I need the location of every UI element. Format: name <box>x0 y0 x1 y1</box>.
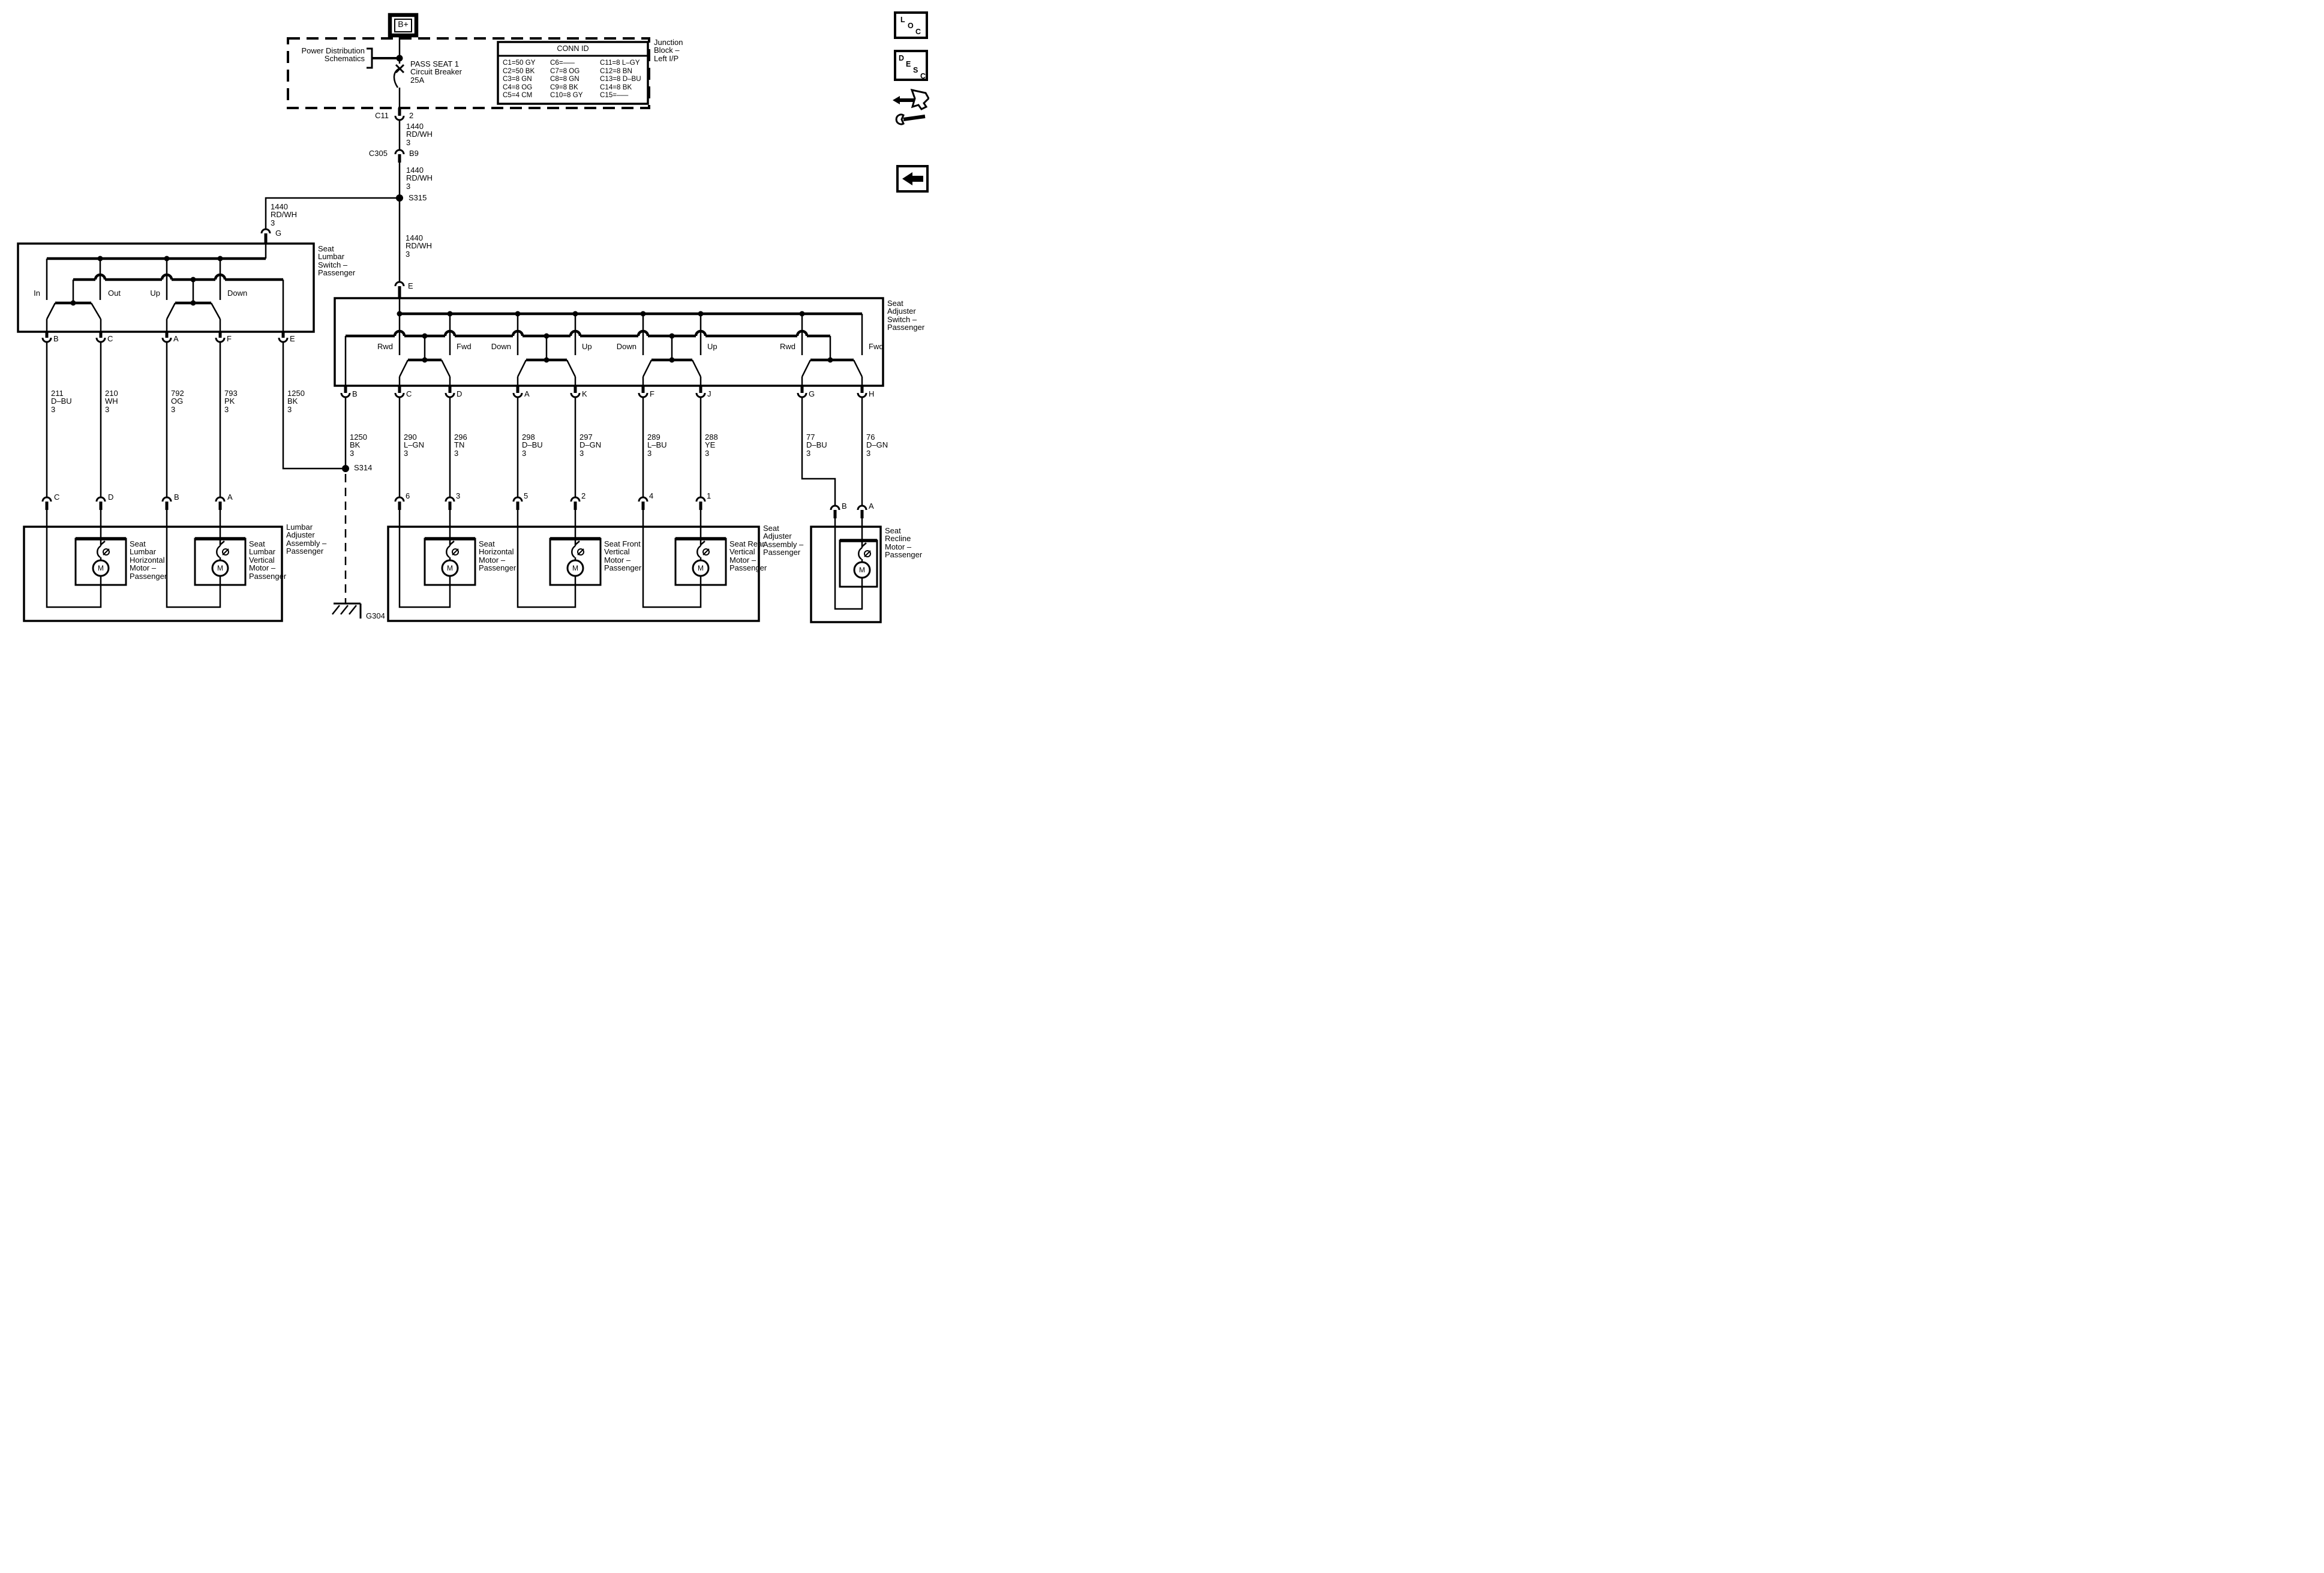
connector-e-icon <box>395 282 404 286</box>
connector-c11-icon <box>395 116 404 120</box>
battery-label: B+ <box>390 20 416 28</box>
power-distribution-label: Power Distribution Schematics <box>287 47 365 63</box>
lumbar-position-up: Up <box>136 289 160 297</box>
motor-m-4: M <box>569 565 581 572</box>
seat-horizontal-motor-label: Seat Horizontal Motor – Passenger <box>479 540 516 572</box>
circuit-breaker-label: PASS SEAT 1 Circuit Breaker 25A <box>410 60 462 84</box>
lumbar-vertical-motor-label: Seat Lumbar Vertical Motor – Passenger <box>249 540 286 580</box>
seat-recline-switch-contact[interactable] <box>802 358 862 386</box>
lumbar-bottom-pin-c: C <box>54 493 59 501</box>
seat-front-vertical-motor-icon <box>568 539 584 585</box>
adjuster-position-fwd-2: Fwd <box>869 343 884 350</box>
connector-c305-label: C305 <box>352 149 388 157</box>
splice-s314-label: S314 <box>354 464 372 472</box>
seat-adjuster-assembly-box <box>388 527 759 621</box>
lumbar-pin-e: E <box>290 335 295 343</box>
splice-s315-label: S315 <box>409 194 427 202</box>
lumbar-switch-pins <box>43 332 342 497</box>
adjuster-assembly-connectors <box>395 497 866 527</box>
wiring-diagram-page: B+ Power Distribution Schematics PASS SE… <box>0 0 929 629</box>
assembly-pin-4: 4 <box>649 492 653 500</box>
desc-letter-e: E <box>906 60 911 68</box>
motor-m-2: M <box>214 565 226 572</box>
adjuster-pin-g: G <box>809 390 815 398</box>
wire-1250-label-lumbar: 1250 BK 3 <box>287 389 305 413</box>
adjuster-pin-b: B <box>352 390 358 398</box>
loc-letter-c: C <box>915 28 921 36</box>
ground-g304-icon <box>332 604 361 619</box>
adjuster-pin-j: J <box>707 390 711 398</box>
wire-290-label: 290 L–GN 3 <box>404 433 424 457</box>
adjuster-position-rwd-2: Rwd <box>765 343 795 350</box>
seat-horizontal-motor-icon <box>442 539 458 585</box>
wire-210-label: 210 WH 3 <box>105 389 118 413</box>
conn-id-title: CONN ID <box>498 45 648 53</box>
wire-289-label: 289 L–BU 3 <box>647 433 667 457</box>
wire-77-label: 77 D–BU 3 <box>806 433 827 457</box>
adjuster-position-rwd-1: Rwd <box>363 343 393 350</box>
lumbar-pin-b: B <box>53 335 59 343</box>
adjuster-pin-f: F <box>650 390 654 398</box>
adjuster-pin-h: H <box>869 390 874 398</box>
seat-adjuster-switch-box <box>335 298 883 386</box>
wire-288-label: 288 YE 3 <box>705 433 718 457</box>
lumbar-vertical-switch-contact[interactable] <box>167 301 220 332</box>
adjuster-pin-a: A <box>524 390 530 398</box>
adjuster-position-down-1: Down <box>481 343 511 350</box>
lumbar-horizontal-switch-contact[interactable] <box>47 301 101 332</box>
adjuster-pin-k: K <box>582 390 587 398</box>
lumbar-pin-f: F <box>227 335 232 343</box>
recline-pin-a: A <box>869 502 874 510</box>
motor-m-3: M <box>444 565 456 572</box>
adjuster-pin-d: D <box>457 390 462 398</box>
circuit-breaker-symbol <box>394 65 404 88</box>
motor-m-5: M <box>695 565 707 572</box>
lumbar-pin-a: A <box>173 335 179 343</box>
loc-letter-o: O <box>908 22 914 30</box>
wire-1250-label-adjuster: 1250 BK 3 <box>350 433 367 457</box>
desc-letter-d: D <box>899 54 904 62</box>
wire-298-label: 298 D–BU 3 <box>522 433 543 457</box>
desc-letter-s: S <box>913 66 918 74</box>
adjuster-switch-title: Seat Adjuster Switch – Passenger <box>887 299 924 332</box>
lumbar-pin-c: C <box>107 335 113 343</box>
lumbar-switch-title: Seat Lumbar Switch – Passenger <box>318 245 355 277</box>
lumbar-position-out: Out <box>108 289 121 297</box>
seat-recline-motor-assembly-box <box>811 527 881 622</box>
adjuster-pin-c: C <box>406 390 412 398</box>
seat-rear-vertical-switch-contact[interactable] <box>643 358 701 386</box>
assembly-pin-6: 6 <box>406 492 410 500</box>
connector-c305-icon <box>395 150 404 154</box>
seat-rear-vertical-motor-icon <box>693 539 709 585</box>
adjuster-position-up-1: Up <box>582 343 592 350</box>
assembly-pin-3: 3 <box>456 492 460 500</box>
adjuster-position-fwd-1: Fwd <box>457 343 472 350</box>
assembly-pin-2: 2 <box>581 492 585 500</box>
adjuster-position-up-2: Up <box>707 343 717 350</box>
wire-1440-label-2: 1440 RD/WH 3 <box>406 166 433 190</box>
seat-lumbar-switch-box <box>18 244 314 332</box>
seat-rear-vertical-motor-label: Seat Rear Vertical Motor – Passenger <box>729 540 767 572</box>
sidebar-icons <box>893 13 929 191</box>
lumbar-bottom-pin-a: A <box>227 493 233 501</box>
power-distribution-bracket <box>367 49 372 68</box>
connector-g-icon <box>262 229 270 233</box>
wire-1440-label-1: 1440 RD/WH 3 <box>406 122 433 146</box>
loc-letter-l: L <box>900 16 905 24</box>
lumbar-bottom-pin-d: D <box>108 493 113 501</box>
motor-m-6: M <box>856 566 868 574</box>
connector-c11-label: C11 <box>355 112 389 119</box>
pin-e-label: E <box>408 282 413 290</box>
assembly-pin-5: 5 <box>524 492 528 500</box>
wire-1440-label-4: 1440 RD/WH 3 <box>406 234 432 258</box>
wire-793-label: 793 PK 3 <box>224 389 238 413</box>
lumbar-assembly-title: Lumbar Adjuster Assembly – Passenger <box>286 523 326 556</box>
seat-horizontal-switch-contact[interactable] <box>400 358 450 386</box>
junction-block-label: Junction Block – Left I/P <box>654 38 683 62</box>
adjuster-assembly-title: Seat Adjuster Assembly – Passenger <box>763 524 803 557</box>
adjuster-position-down-2: Down <box>606 343 636 350</box>
conn-id-col2: C6=––– C7=8 OG C8=8 GN C9=8 BK C10=8 GY <box>550 59 582 100</box>
lumbar-horizontal-motor-label: Seat Lumbar Horizontal Motor – Passenger <box>130 540 167 580</box>
lumbar-bottom-pin-b: B <box>174 493 179 501</box>
lumbar-horizontal-motor-icon <box>93 539 109 585</box>
seat-recline-motor-label: Seat Recline Motor – Passenger <box>885 527 922 559</box>
conn-id-col3: C11=8 L–GY C12=8 BN C13=8 D–BU C14=8 BK … <box>600 59 641 100</box>
wire-76-label: 76 D–GN 3 <box>866 433 888 457</box>
splice-s314-dot <box>343 466 349 472</box>
recline-pin-b: B <box>842 502 847 510</box>
wire-211-label: 211 D–BU 3 <box>51 389 72 413</box>
s314-ground-path <box>332 466 361 619</box>
seat-recline-motor-icon <box>854 541 870 587</box>
seat-front-vertical-motor-label: Seat Front Vertical Motor – Passenger <box>604 540 641 572</box>
ground-g304-label: G304 <box>366 612 385 620</box>
back-button[interactable] <box>897 166 927 191</box>
pin-g-label: G <box>275 229 281 237</box>
wire-792-label: 792 OG 3 <box>171 389 184 413</box>
lumbar-position-down: Down <box>227 289 247 297</box>
wire-1440-label-3: 1440 RD/WH 3 <box>271 203 297 227</box>
connector-c11-pin: 2 <box>409 112 413 119</box>
desc-letter-c: C <box>920 72 926 80</box>
lumbar-assembly-connectors <box>43 497 224 527</box>
wire-297-label: 297 D–GN 3 <box>580 433 601 457</box>
conn-id-col1: C1=50 GY C2=50 BK C3=8 GN C4=8 OG C5=4 C… <box>503 59 535 100</box>
lumbar-position-in: In <box>16 289 40 297</box>
lumbar-vertical-motor-icon <box>212 539 229 585</box>
back-arrow-icon <box>902 172 923 185</box>
schematic-navigation-icon[interactable] <box>893 90 929 124</box>
wrench-icon <box>896 115 903 124</box>
assembly-pin-1: 1 <box>707 492 711 500</box>
connector-c305-pin: B9 <box>409 149 419 157</box>
motor-m-1: M <box>95 565 107 572</box>
seat-front-vertical-switch-contact[interactable] <box>518 358 575 386</box>
wire-296-label: 296 TN 3 <box>454 433 467 457</box>
